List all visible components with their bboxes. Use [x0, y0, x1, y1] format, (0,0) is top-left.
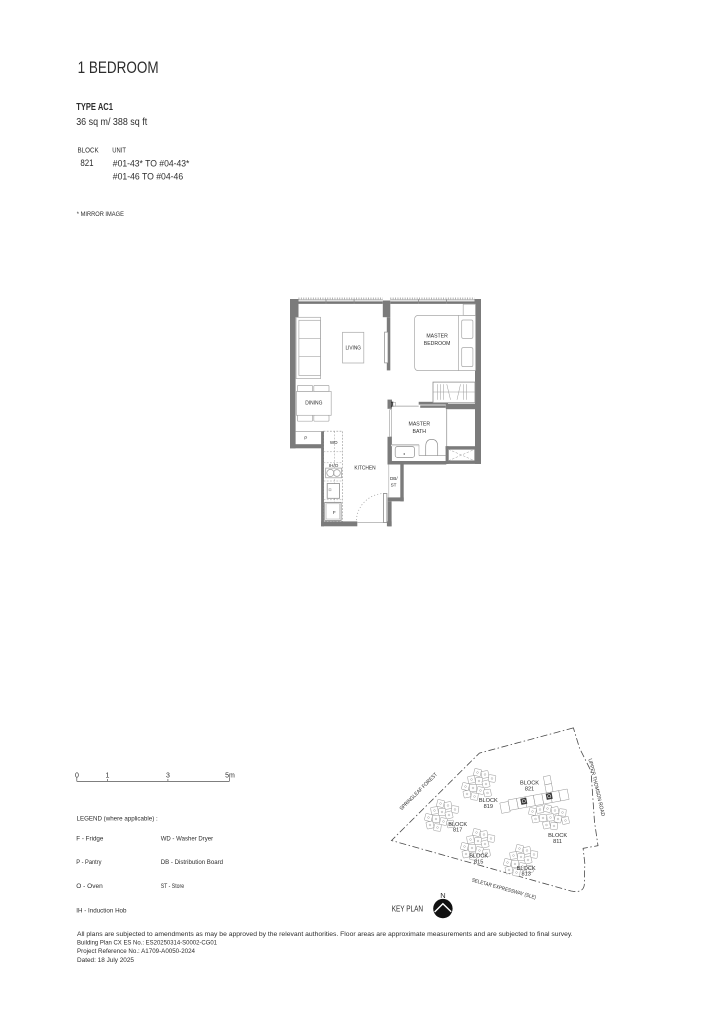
svg-text:0: 0 — [75, 772, 79, 779]
svg-text:#01-43* TO #04-43*: #01-43* TO #04-43* — [113, 159, 190, 169]
svg-text:LEGEND (where applicable) :: LEGEND (where applicable) : — [77, 815, 158, 822]
svg-text:ST - Store: ST - Store — [161, 883, 185, 890]
svg-text:1: 1 — [106, 772, 110, 779]
svg-text:815: 815 — [474, 859, 483, 865]
svg-text:821: 821 — [80, 158, 93, 168]
svg-text:KITCHEN: KITCHEN — [354, 465, 375, 471]
svg-text:DB - Distribution Board: DB - Distribution Board — [161, 859, 224, 866]
svg-text:821: 821 — [525, 786, 534, 792]
svg-text:UNIT: UNIT — [112, 147, 126, 155]
svg-text:#01-46 TO #04-46: #01-46 TO #04-46 — [113, 172, 183, 182]
svg-text:811: 811 — [553, 839, 562, 845]
svg-text:ST: ST — [391, 483, 397, 488]
svg-text:* MIRROR IMAGE: * MIRROR IMAGE — [77, 211, 124, 218]
svg-text:36 sq m/ 388 sq ft: 36 sq m/ 388 sq ft — [76, 117, 147, 128]
svg-text:Project Reference No.: A1709-A: Project Reference No.: A1709-A0050-2024 — [77, 948, 196, 955]
svg-text:819: 819 — [484, 804, 493, 810]
svg-text:IH/O: IH/O — [329, 463, 339, 468]
svg-text:MASTER: MASTER — [426, 333, 448, 339]
svg-text:O - Oven: O - Oven — [76, 883, 103, 890]
svg-text:1 BEDROOM: 1 BEDROOM — [78, 58, 159, 77]
svg-text:BEDROOM: BEDROOM — [424, 341, 451, 347]
svg-text:All plans are subjected to ame: All plans are subjected to amendments as… — [77, 931, 573, 938]
svg-text:WD - Washer Dryer: WD - Washer Dryer — [161, 836, 214, 843]
svg-text:KEY PLAN: KEY PLAN — [392, 904, 423, 914]
svg-text:LIVING: LIVING — [345, 345, 361, 351]
svg-text:BATH: BATH — [413, 429, 427, 435]
svg-text:817: 817 — [453, 827, 462, 833]
svg-text:F: F — [333, 510, 336, 515]
svg-text:SPRINGLEAF FOREST: SPRINGLEAF FOREST — [399, 771, 440, 812]
svg-text:BLOCK: BLOCK — [548, 833, 567, 839]
svg-text:Dated: 18 July 2025: Dated: 18 July 2025 — [77, 957, 135, 964]
svg-text:N: N — [440, 891, 445, 900]
svg-text:SELETAR EXPRESSWAY (SLE): SELETAR EXPRESSWAY (SLE) — [471, 878, 537, 902]
svg-text:DINING: DINING — [305, 401, 322, 407]
svg-text:DB/: DB/ — [390, 476, 398, 481]
svg-text:BLOCK: BLOCK — [78, 147, 99, 155]
svg-text:TYPE AC1: TYPE AC1 — [76, 102, 113, 113]
svg-text:3: 3 — [166, 772, 170, 779]
svg-text:MASTER: MASTER — [409, 421, 431, 427]
svg-text:Building Plan CX ES No.: ES202: Building Plan CX ES No.: ES20250314-S000… — [77, 940, 218, 947]
svg-text:P - Pantry: P - Pantry — [76, 859, 102, 866]
svg-text:813: 813 — [522, 872, 531, 878]
svg-text:P: P — [304, 436, 307, 441]
svg-text:5m: 5m — [225, 772, 235, 779]
svg-text:UPPER THOMSON ROAD: UPPER THOMSON ROAD — [586, 758, 605, 817]
svg-text:IH - Induction Hob: IH - Induction Hob — [76, 907, 127, 914]
svg-text:WD: WD — [330, 440, 338, 445]
svg-text:F - Fridge: F - Fridge — [76, 836, 104, 843]
